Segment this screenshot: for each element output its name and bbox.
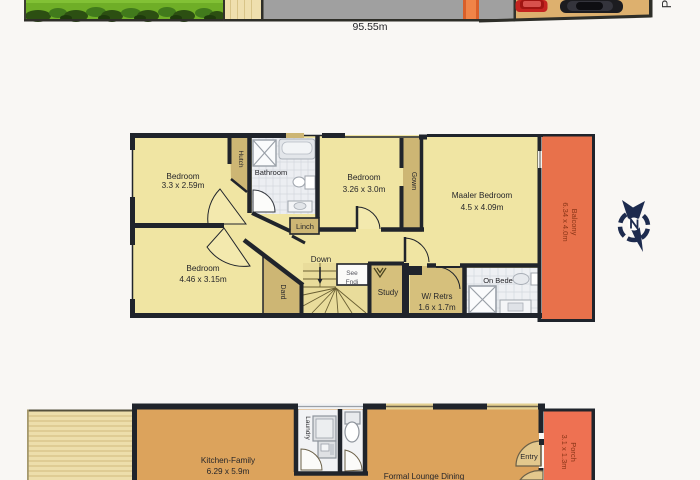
svg-text:Fndi: Fndi bbox=[346, 279, 359, 286]
svg-text:Study: Study bbox=[378, 288, 398, 297]
svg-text:1.6 x 1.7m: 1.6 x 1.7m bbox=[418, 303, 456, 312]
svg-text:Kitchen-Family: Kitchen-Family bbox=[201, 456, 256, 465]
svg-text:W/ Retrs: W/ Retrs bbox=[421, 292, 452, 301]
svg-text:4.5 x 4.09m: 4.5 x 4.09m bbox=[461, 203, 504, 212]
svg-text:4.46 x 3.15m: 4.46 x 3.15m bbox=[179, 275, 227, 284]
svg-text:6.34 x 4.0m: 6.34 x 4.0m bbox=[561, 202, 570, 241]
svg-text:Porch: Porch bbox=[569, 442, 578, 462]
svg-text:3.3 x 2.59m: 3.3 x 2.59m bbox=[162, 181, 205, 190]
svg-text:Bedroom: Bedroom bbox=[186, 264, 219, 273]
svg-text:Hutch: Hutch bbox=[237, 151, 244, 168]
svg-text:Entry: Entry bbox=[520, 452, 538, 461]
svg-text:6.29 x 5.9m: 6.29 x 5.9m bbox=[207, 467, 250, 476]
svg-text:Down: Down bbox=[311, 255, 331, 264]
svg-text:Bedroom: Bedroom bbox=[347, 173, 380, 182]
svg-text:On Bede: On Bede bbox=[483, 276, 513, 285]
svg-text:Bedroom: Bedroom bbox=[166, 172, 199, 181]
svg-text:Linch: Linch bbox=[296, 222, 314, 231]
svg-text:Formal Lounge Dining: Formal Lounge Dining bbox=[384, 472, 465, 480]
svg-text:Balcony: Balcony bbox=[570, 209, 579, 236]
svg-text:Maaler Bedroom: Maaler Bedroom bbox=[452, 191, 513, 200]
svg-text:3.26 x 3.0m: 3.26 x 3.0m bbox=[343, 185, 386, 194]
svg-text:Laundry: Laundry bbox=[304, 416, 311, 440]
svg-text:Gown: Gown bbox=[410, 172, 417, 190]
svg-text:3.1 x 1.3m: 3.1 x 1.3m bbox=[560, 434, 569, 469]
svg-text:Dard: Dard bbox=[279, 284, 286, 299]
svg-text:Bathroom: Bathroom bbox=[255, 168, 288, 177]
svg-text:95.55m: 95.55m bbox=[352, 21, 387, 33]
svg-text:See: See bbox=[346, 270, 358, 277]
svg-text:P: P bbox=[659, 0, 674, 8]
